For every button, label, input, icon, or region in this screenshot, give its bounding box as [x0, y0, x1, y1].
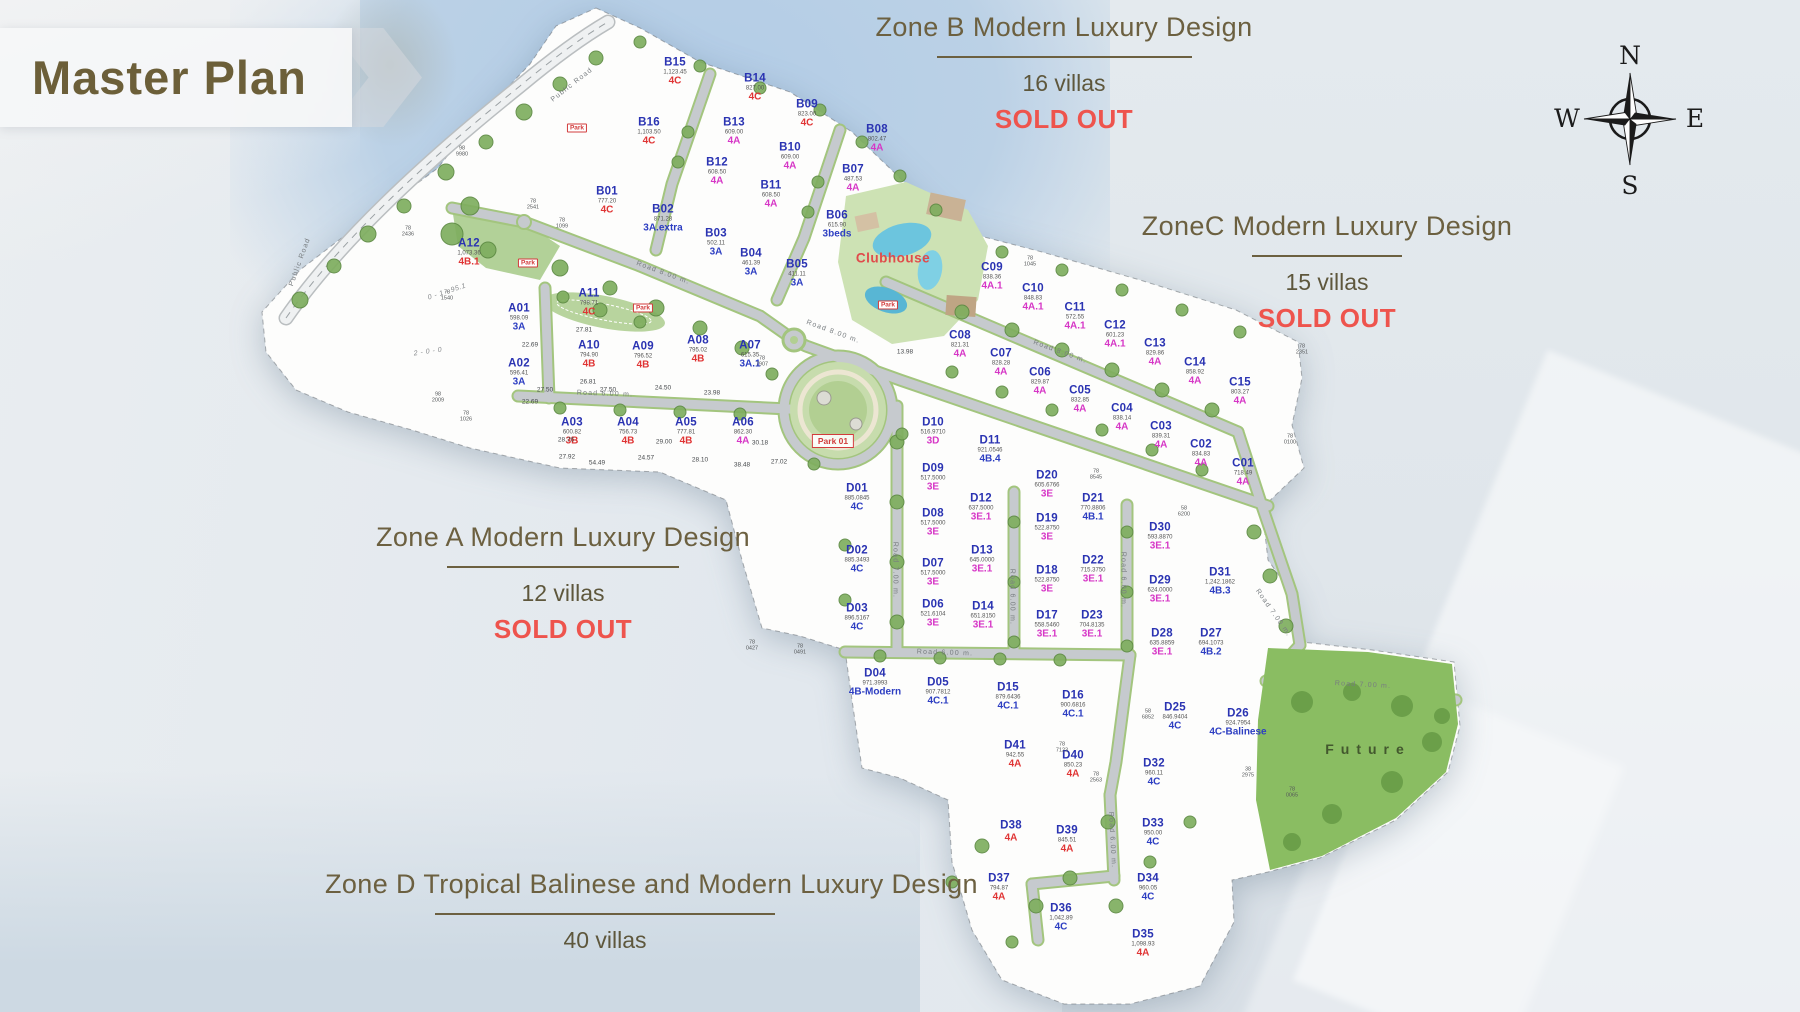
zone-b-villas: 16 villas [844, 70, 1284, 97]
zone-c-villas: 15 villas [1107, 269, 1547, 296]
clubhouse-label: Clubhouse [856, 251, 930, 266]
zone-a-divider [447, 566, 679, 568]
zone-d-label: Zone D Tropical Balinese and Modern Luxu… [325, 869, 885, 961]
site-plan-drawing [0, 0, 1800, 1012]
zone-c-status: SOLD OUT [1107, 303, 1547, 334]
future-area-label: Future [1325, 741, 1411, 757]
zone-b-label: Zone B Modern Luxury Design 16 villas SO… [844, 12, 1284, 135]
zone-a-status: SOLD OUT [363, 614, 763, 645]
zone-a-villas: 12 villas [363, 580, 763, 607]
title-banner: Master Plan [0, 28, 352, 127]
zone-d-divider [435, 913, 775, 915]
compass-east-label: E [1686, 104, 1704, 133]
page-title: Master Plan [0, 28, 352, 127]
zone-b-divider [937, 56, 1192, 58]
compass-south-label: S [1621, 171, 1638, 200]
compass-needles [1584, 73, 1676, 165]
compass-rose: N S E W [1545, 28, 1730, 218]
compass-north-label: N [1619, 41, 1641, 70]
compass-west-label: W [1554, 104, 1580, 133]
zone-c-divider [1252, 255, 1402, 257]
zone-c-title: ZoneC Modern Luxury Design [1107, 211, 1547, 242]
zone-c-label: ZoneC Modern Luxury Design 15 villas SOL… [1107, 211, 1547, 334]
zone-b-status: SOLD OUT [844, 104, 1284, 135]
zone-d-title: Zone D Tropical Balinese and Modern Luxu… [325, 869, 885, 900]
master-plan-page: B151,123.454CB14827.004CB09823.004CB161,… [0, 0, 1800, 1012]
park-01-label: Park 01 [812, 434, 854, 448]
zone-b-title: Zone B Modern Luxury Design [844, 12, 1284, 43]
zone-a-title: Zone A Modern Luxury Design [363, 522, 763, 553]
zone-d-villas: 40 villas [325, 927, 885, 954]
zone-a-label: Zone A Modern Luxury Design 12 villas SO… [363, 522, 763, 645]
